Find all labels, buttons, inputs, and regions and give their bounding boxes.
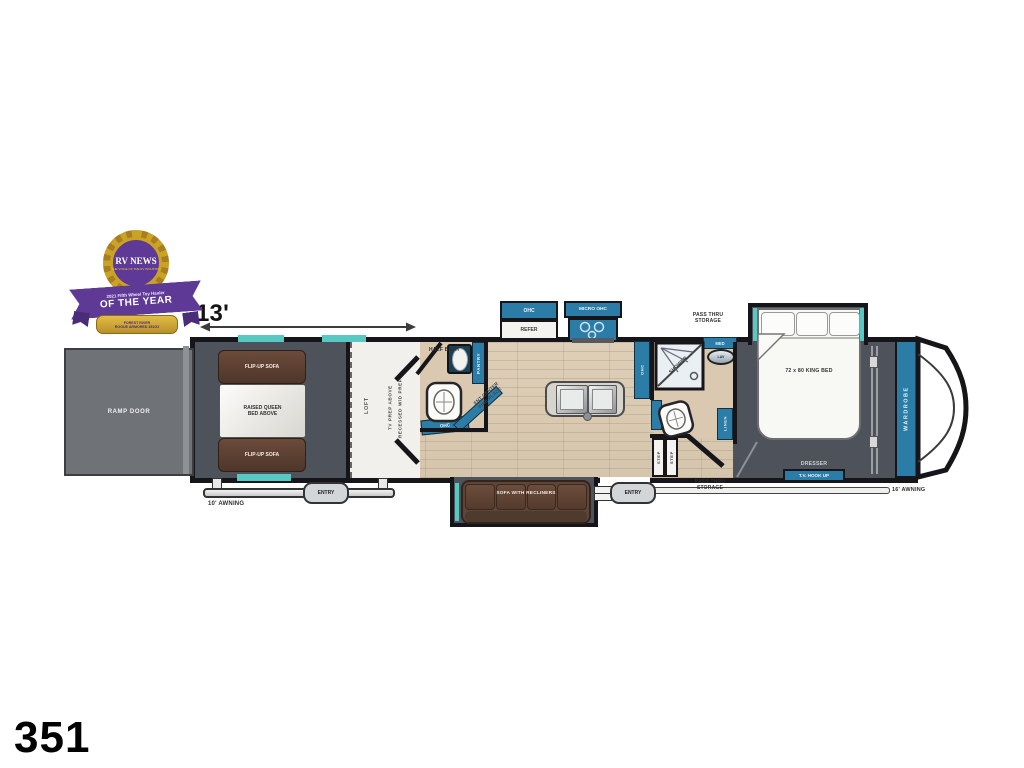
cooktop-base (572, 338, 614, 343)
dimension-arrow (200, 323, 416, 332)
floorplan-page: RV NEWS THE VOICE OF THE RV INDUSTRY 202… (0, 0, 1024, 768)
badge-tagline: THE VOICE OF THE RV INDUSTRY (112, 267, 161, 271)
ramp-door: RAMP DOOR (64, 348, 194, 476)
pillow (761, 312, 795, 336)
sofa-cushion (557, 484, 587, 510)
garage-entry-door: ENTRY (303, 482, 349, 504)
slide-latch (869, 436, 878, 448)
raised-queen-bed: RAISED QUEEN BED ABOVE (219, 384, 306, 438)
bed-blanket-line (758, 337, 859, 339)
half-bath-label: HALF BATH (422, 347, 466, 353)
bath-side-cabinet (651, 400, 662, 430)
sofa-cushion (527, 484, 557, 510)
loft-label: LOFT (360, 378, 374, 434)
slide-latch (869, 356, 878, 368)
tv-prep-label: TV PREP ABOVE (385, 372, 395, 444)
entry-label: ENTRY (625, 490, 642, 496)
entry-label: ENTRY (318, 490, 335, 496)
ramp-door-label: RAMP DOOR (108, 409, 151, 415)
sofa-cushion (465, 484, 495, 510)
front-wardrobe: WARDROBE (895, 340, 918, 478)
pillow (796, 312, 828, 336)
bath-bottom-wall (650, 434, 690, 438)
garage-right-wall (346, 342, 350, 478)
awning-10-label: 10' AWNING (208, 501, 268, 508)
sink-basin (560, 389, 584, 410)
sofa-cushion (496, 484, 526, 510)
kitchen-ohc-label: OHC (523, 308, 534, 314)
wd-prep-label: RECESSED W/D PREP (395, 372, 405, 444)
sofa-label: SOFA WITH RECLINERS (463, 491, 589, 497)
kitchen-ohc: OHC (500, 301, 558, 320)
pass-thru-storage-top-label: PASS THRU STORAGE (682, 312, 734, 324)
ramp-door-hinge (183, 346, 189, 474)
pass-thru-storage-bottom-label: PASS THRU STORAGE (684, 479, 736, 491)
wardrobe-label: WARDROBE (900, 346, 913, 472)
front-cap (918, 339, 966, 477)
kitchen-sink-left-icon (556, 385, 588, 414)
model-number: 351 (14, 712, 90, 765)
med-cab-label: MED (715, 341, 724, 346)
counter-ohc-label: OHC (636, 342, 648, 398)
micro-ohc-label: MICRO OHC (579, 307, 607, 312)
slide-accent (455, 483, 459, 521)
king-bed-label: 72 x 80 KING BED (762, 368, 856, 374)
dresser-label: DRESSER (779, 461, 849, 467)
pillow (829, 312, 860, 336)
bath-bedroom-wall (733, 342, 737, 444)
refrigerator: REFER (500, 320, 558, 340)
step-1: STEP (652, 438, 665, 477)
flip-up-sofa-label: FLIP-UP SOFA (245, 452, 279, 458)
sink-basin (592, 389, 613, 410)
slide-accent (322, 335, 366, 342)
slide-accent (860, 308, 864, 341)
flip-up-sofa-top: FLIP-UP SOFA (218, 350, 306, 384)
flip-up-sofa-bottom: FLIP-UP SOFA (218, 438, 306, 472)
sofa-cushions (465, 484, 587, 510)
slide-accent (237, 474, 291, 481)
pantry-label: PANTRY (473, 343, 484, 383)
kitchen-sink-right-icon (588, 385, 617, 414)
cooktop-burners (570, 320, 616, 340)
garage-awning-bar (203, 488, 395, 498)
badge-medallion: RV NEWS THE VOICE OF THE RV INDUSTRY (110, 237, 162, 289)
linen-label: LINEN (719, 409, 731, 439)
step-label: STEP (654, 440, 663, 475)
award-badge: RV NEWS THE VOICE OF THE RV INDUSTRY 202… (70, 230, 202, 334)
counter-ohc: OHC (634, 341, 650, 399)
slide-accent (238, 335, 284, 342)
badge-winner-banner: FOREST RIVER ROGUE ARMORED 351G2 (96, 315, 178, 334)
tv-hookup-label: T.V. HOOK UP (799, 473, 829, 478)
refer-label: REFER (521, 327, 538, 333)
lav-label: LAV (718, 355, 725, 359)
medicine-cabinet: MED (703, 337, 737, 349)
micro-ohc: MICRO OHC (564, 301, 622, 318)
raised-queen-label-2: BED ABOVE (248, 411, 278, 417)
badge-winner-line2: ROGUE ARMORED 351G2 (115, 325, 159, 329)
pass-thru-top-line2: STORAGE (682, 318, 734, 324)
lav-sink-icon: LAV (707, 349, 735, 365)
step-label: STEP (667, 440, 676, 475)
tv-hookup: T.V. HOOK UP (783, 469, 845, 482)
half-bath-bottom-wall (420, 428, 486, 432)
bath-left-wall (650, 342, 654, 400)
badge-ribbon-tail-right (182, 311, 200, 327)
badge-ribbon-tail-left (72, 311, 90, 327)
main-entry-door: ENTRY (610, 482, 656, 504)
badge-brand: RV NEWS (115, 256, 156, 266)
step-2: STEP (665, 438, 678, 477)
pass-thru-bottom-line2: STORAGE (684, 485, 736, 491)
flip-up-sofa-label: FLIP-UP SOFA (245, 364, 279, 370)
sofa-backrest (465, 511, 587, 522)
awning-16-label: 16' AWNING (892, 487, 942, 494)
linen-cabinet: LINEN (717, 408, 733, 440)
faucet-icon (583, 412, 592, 421)
sofa-with-recliners: SOFA WITH RECLINERS (461, 480, 591, 524)
slide-accent (753, 308, 757, 341)
